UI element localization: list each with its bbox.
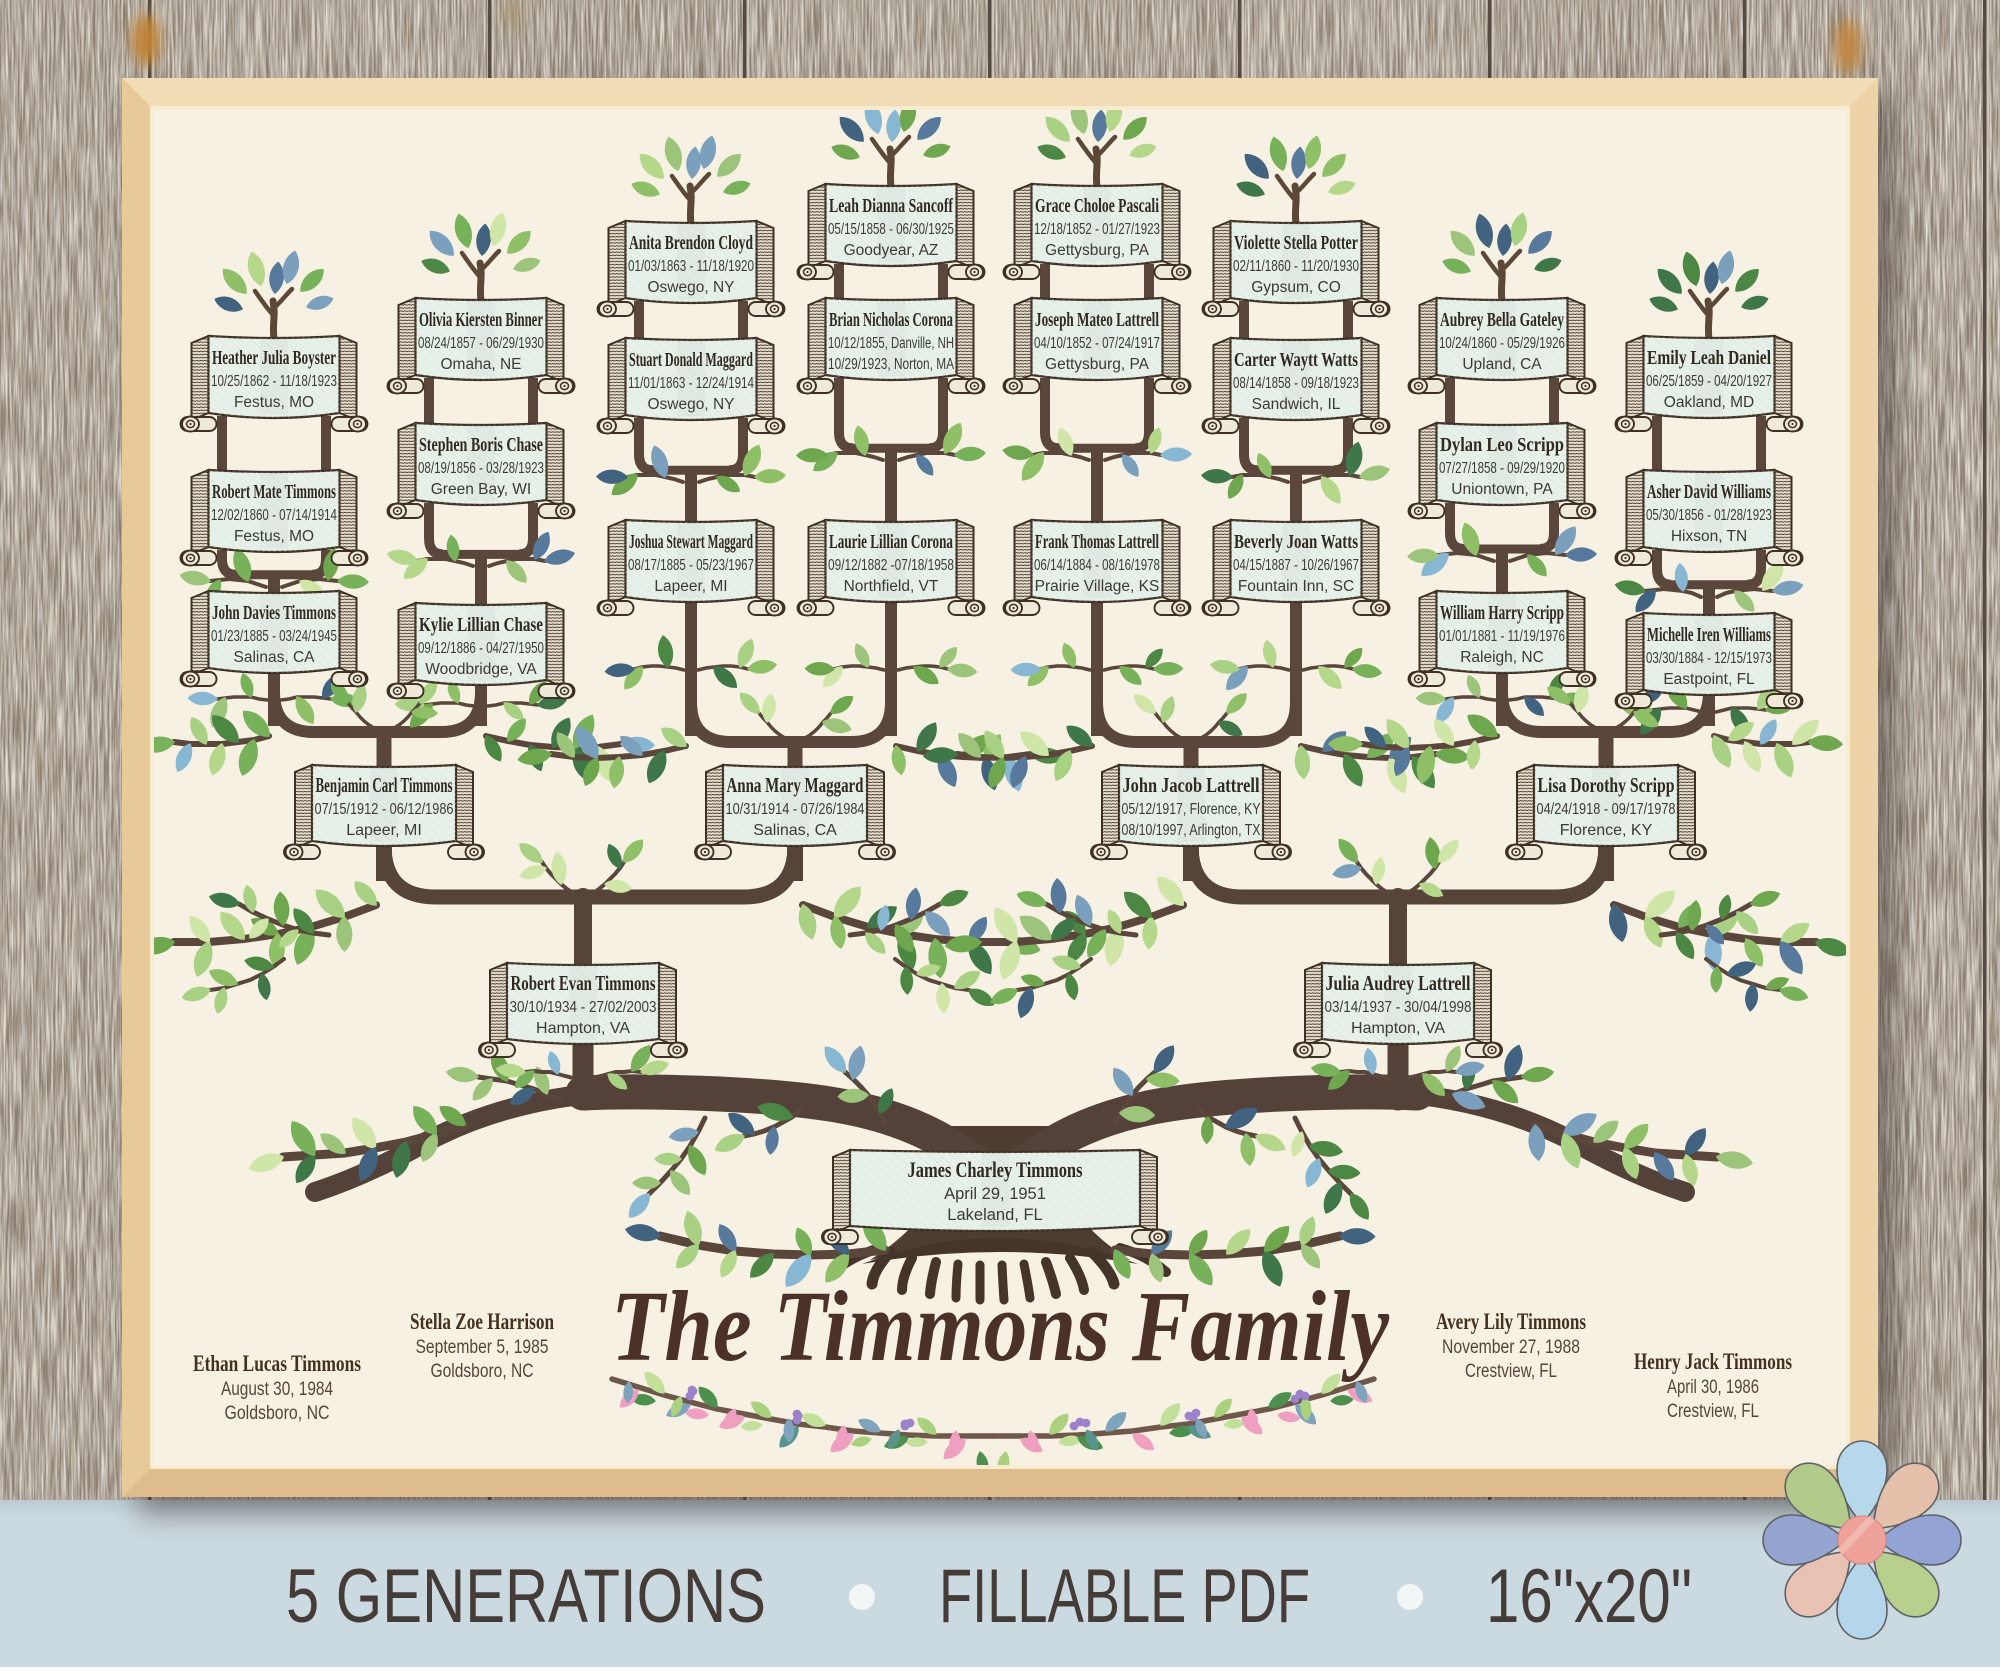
svg-text:Brian Nicholas Corona: Brian Nicholas Corona xyxy=(829,310,953,331)
svg-text:10/29/1923, Norton, MA: 10/29/1923, Norton, MA xyxy=(828,356,955,373)
svg-text:Robert Evan Timmons: Robert Evan Timmons xyxy=(511,971,656,995)
svg-text:Festus, MO: Festus, MO xyxy=(234,528,314,545)
svg-text:Avery Lily Timmons: Avery Lily Timmons xyxy=(1436,1309,1586,1334)
svg-text:01/23/1885 - 03/24/1945: 01/23/1885 - 03/24/1945 xyxy=(211,628,337,645)
svg-text:16"x20": 16"x20" xyxy=(1486,1554,1692,1639)
svg-text:Emily Leah Daniel: Emily Leah Daniel xyxy=(1647,348,1771,369)
svg-text:03/14/1937 - 30/04/1998: 03/14/1937 - 30/04/1998 xyxy=(1325,999,1472,1016)
svg-text:Beverly Joan Watts: Beverly Joan Watts xyxy=(1234,532,1358,553)
svg-text:Lakeland, FL: Lakeland, FL xyxy=(947,1206,1042,1224)
svg-text:Laurie Lillian Corona: Laurie Lillian Corona xyxy=(829,532,953,553)
svg-text:Lisa Dorothy Scripp: Lisa Dorothy Scripp xyxy=(1538,773,1675,797)
svg-text:Goodyear, AZ: Goodyear, AZ xyxy=(844,242,939,259)
svg-text:07/27/1858 - 09/29/1920: 07/27/1858 - 09/29/1920 xyxy=(1439,460,1565,477)
svg-text:Festus, MO: Festus, MO xyxy=(234,394,314,411)
svg-text:01/01/1881 - 11/19/1976: 01/01/1881 - 11/19/1976 xyxy=(1439,628,1565,645)
svg-text:September 5, 1985: September 5, 1985 xyxy=(416,1337,549,1358)
svg-text:10/24/1860 - 05/29/1926: 10/24/1860 - 05/29/1926 xyxy=(1439,335,1565,352)
svg-text:William Harry Scripp: William Harry Scripp xyxy=(1440,603,1564,624)
svg-text:Hampton, VA: Hampton, VA xyxy=(1351,1020,1445,1037)
svg-text:James Charley Timmons: James Charley Timmons xyxy=(908,1157,1083,1182)
svg-text:Joshua Stewart Maggard: Joshua Stewart Maggard xyxy=(629,532,753,553)
svg-text:Hixson, TN: Hixson, TN xyxy=(1671,528,1747,545)
svg-text:John Davies Timmons: John Davies Timmons xyxy=(212,603,336,624)
svg-text:5 GENERATIONS: 5 GENERATIONS xyxy=(286,1554,766,1639)
svg-text:Olivia Kiersten Binner: Olivia Kiersten Binner xyxy=(419,310,543,331)
svg-text:John Jacob Lattrell: John Jacob Lattrell xyxy=(1123,773,1260,797)
svg-text:Salinas, CA: Salinas, CA xyxy=(753,822,837,839)
svg-text:Green Bay, WI: Green Bay, WI xyxy=(431,481,532,498)
svg-text:November 27, 1988: November 27, 1988 xyxy=(1442,1337,1580,1358)
svg-text:08/19/1856 - 03/28/1923: 08/19/1856 - 03/28/1923 xyxy=(418,460,544,477)
svg-text:Northfield, VT: Northfield, VT xyxy=(844,578,939,595)
svg-text:April 29, 1951: April 29, 1951 xyxy=(944,1185,1046,1203)
svg-text:Violette Stella Potter: Violette Stella Potter xyxy=(1234,233,1358,254)
svg-text:Carter Waytt Watts: Carter Waytt Watts xyxy=(1234,350,1358,371)
svg-text:Oswego, NY: Oswego, NY xyxy=(647,279,734,296)
svg-text:April 30, 1986: April 30, 1986 xyxy=(1667,1377,1759,1398)
svg-text:The Timmons Family: The Timmons Family xyxy=(611,1270,1390,1382)
svg-text:Woodbridge, VA: Woodbridge, VA xyxy=(425,661,537,678)
svg-text:Eastpoint, FL: Eastpoint, FL xyxy=(1663,671,1755,688)
svg-text:05/30/1856 - 01/28/1923: 05/30/1856 - 01/28/1923 xyxy=(1646,507,1772,524)
svg-text:Michelle Iren Williams: Michelle Iren Williams xyxy=(1647,625,1771,646)
svg-text:Fountain Inn, SC: Fountain Inn, SC xyxy=(1238,578,1354,595)
svg-text:Goldsboro, NC: Goldsboro, NC xyxy=(225,1403,330,1424)
svg-text:Salinas, CA: Salinas, CA xyxy=(234,649,316,666)
svg-text:Hampton, VA: Hampton, VA xyxy=(536,1020,630,1037)
svg-text:12/02/1860 - 07/14/1914: 12/02/1860 - 07/14/1914 xyxy=(211,507,337,524)
svg-text:Oswego, NY: Oswego, NY xyxy=(647,396,734,413)
svg-text:Raleigh, NC: Raleigh, NC xyxy=(1460,649,1544,666)
svg-text:Gettysburg, PA: Gettysburg, PA xyxy=(1045,242,1150,259)
svg-text:Kylie Lillian Chase: Kylie Lillian Chase xyxy=(419,615,543,636)
svg-text:Florence, KY: Florence, KY xyxy=(1560,822,1653,839)
svg-text:08/24/1857 - 06/29/1930: 08/24/1857 - 06/29/1930 xyxy=(418,335,544,352)
svg-text:03/30/1884 - 12/15/1973: 03/30/1884 - 12/15/1973 xyxy=(1646,650,1772,667)
svg-text:Joseph Mateo Lattrell: Joseph Mateo Lattrell xyxy=(1035,310,1159,331)
svg-text:04/24/1918 - 09/17/1978: 04/24/1918 - 09/17/1978 xyxy=(1537,801,1676,818)
svg-text:Oakland, MD: Oakland, MD xyxy=(1664,394,1754,411)
svg-text:August 30, 1984: August 30, 1984 xyxy=(221,1379,333,1400)
svg-text:Sandwich, IL: Sandwich, IL xyxy=(1252,396,1341,413)
svg-text:04/15/1887 - 10/26/1967: 04/15/1887 - 10/26/1967 xyxy=(1233,557,1359,574)
svg-text:Robert Mate Timmons: Robert Mate Timmons xyxy=(212,482,336,503)
svg-text:Asher David Williams: Asher David Williams xyxy=(1647,482,1771,503)
svg-text:11/01/1863 - 12/24/1914: 11/01/1863 - 12/24/1914 xyxy=(628,375,754,392)
svg-text:Leah Dianna Sancoff: Leah Dianna Sancoff xyxy=(829,196,953,217)
svg-text:Dylan Leo Scripp: Dylan Leo Scripp xyxy=(1440,435,1564,456)
svg-text:Upland, CA: Upland, CA xyxy=(1462,356,1542,373)
svg-text:09/12/1886 - 04/27/1950: 09/12/1886 - 04/27/1950 xyxy=(418,640,544,657)
svg-text:Stuart Donald Maggard: Stuart Donald Maggard xyxy=(629,350,753,371)
svg-text:Lapeer, MI: Lapeer, MI xyxy=(346,822,422,839)
svg-text:Ethan Lucas Timmons: Ethan Lucas Timmons xyxy=(193,1351,361,1376)
svg-text:Prairie Village, KS: Prairie Village, KS xyxy=(1035,578,1160,595)
svg-text:Anna Mary Maggard: Anna Mary Maggard xyxy=(727,773,864,797)
svg-text:07/15/1912 - 06/12/1986: 07/15/1912 - 06/12/1986 xyxy=(315,801,454,818)
svg-text:Lapeer, MI: Lapeer, MI xyxy=(654,578,727,595)
svg-text:Julia Audrey Lattrell: Julia Audrey Lattrell xyxy=(1326,971,1471,995)
svg-text:Crestview, FL: Crestview, FL xyxy=(1465,1361,1557,1382)
svg-text:04/10/1852 - 07/24/1917: 04/10/1852 - 07/24/1917 xyxy=(1034,335,1160,352)
svg-text:Heather Julia Boyster: Heather Julia Boyster xyxy=(212,348,336,369)
svg-text:Uniontown, PA: Uniontown, PA xyxy=(1451,481,1553,498)
svg-text:Crestview, FL: Crestview, FL xyxy=(1667,1401,1759,1422)
svg-text:Stephen Boris Chase: Stephen Boris Chase xyxy=(419,435,543,456)
svg-text:Grace Choloe Pascali: Grace Choloe Pascali xyxy=(1035,196,1159,217)
svg-text:Omaha, NE: Omaha, NE xyxy=(441,356,522,373)
svg-text:30/10/1934 - 27/02/2003: 30/10/1934 - 27/02/2003 xyxy=(510,999,657,1016)
svg-text:09/12/1882 -07/18/1958: 09/12/1882 -07/18/1958 xyxy=(828,557,954,574)
svg-text:01/03/1863 - 11/18/1920: 01/03/1863 - 11/18/1920 xyxy=(628,258,754,275)
svg-text:10/25/1862 - 11/18/1923: 10/25/1862 - 11/18/1923 xyxy=(211,373,337,390)
svg-text:Anita Brendon Cloyd: Anita Brendon Cloyd xyxy=(629,233,753,254)
svg-text:08/10/1997, Arlington, TX: 08/10/1997, Arlington, TX xyxy=(1122,822,1261,839)
svg-text:Stella Zoe Harrison: Stella Zoe Harrison xyxy=(410,1309,554,1334)
svg-text:Benjamin Carl Timmons: Benjamin Carl Timmons xyxy=(316,773,453,797)
svg-text:Gypsum, CO: Gypsum, CO xyxy=(1251,279,1341,296)
svg-text:Goldsboro, NC: Goldsboro, NC xyxy=(431,1361,534,1382)
svg-text:Frank Thomas Lattrell: Frank Thomas Lattrell xyxy=(1035,532,1159,553)
svg-text:12/18/1852 - 01/27/1923: 12/18/1852 - 01/27/1923 xyxy=(1034,221,1160,238)
svg-text:05/15/1858 - 06/30/1925: 05/15/1858 - 06/30/1925 xyxy=(828,221,954,238)
svg-text:06/14/1884 - 08/16/1978: 06/14/1884 - 08/16/1978 xyxy=(1034,557,1160,574)
svg-text:08/17/1885 - 05/23/1967: 08/17/1885 - 05/23/1967 xyxy=(628,557,754,574)
svg-text:Aubrey Bella Gateley: Aubrey Bella Gateley xyxy=(1440,310,1564,331)
svg-text:02/11/1860 - 11/20/1930: 02/11/1860 - 11/20/1930 xyxy=(1233,258,1359,275)
svg-text:10/31/1914 - 07/26/1984: 10/31/1914 - 07/26/1984 xyxy=(726,801,865,818)
svg-text:Henry Jack Timmons: Henry Jack Timmons xyxy=(1634,1349,1792,1374)
svg-text:08/14/1858 - 09/18/1923: 08/14/1858 - 09/18/1923 xyxy=(1233,375,1359,392)
svg-text:10/12/1855, Danville, NH: 10/12/1855, Danville, NH xyxy=(828,335,954,352)
svg-text:Gettysburg, PA: Gettysburg, PA xyxy=(1045,356,1150,373)
svg-text:FILLABLE PDF: FILLABLE PDF xyxy=(939,1554,1310,1639)
svg-text:05/12/1917, Florence, KY: 05/12/1917, Florence, KY xyxy=(1122,801,1261,818)
svg-text:06/25/1859 - 04/20/1927: 06/25/1859 - 04/20/1927 xyxy=(1646,373,1772,390)
